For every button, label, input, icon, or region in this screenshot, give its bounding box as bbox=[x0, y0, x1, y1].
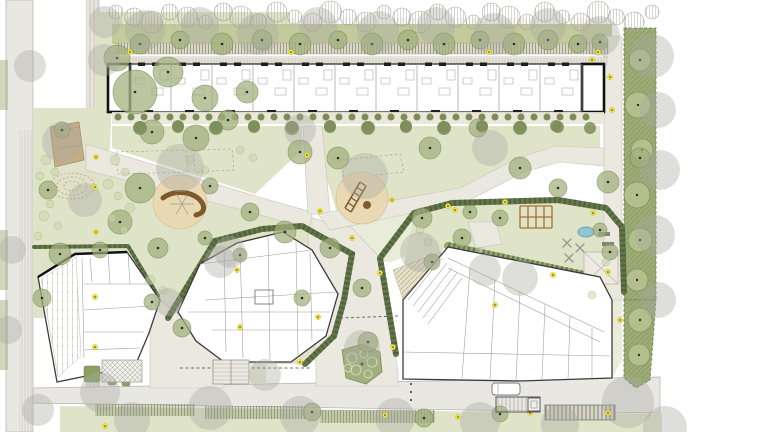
terrace-hedge-bush bbox=[245, 114, 252, 121]
existing-tree-canopy bbox=[357, 11, 399, 53]
terrace-hedge-bush bbox=[141, 114, 148, 121]
window-block bbox=[261, 63, 268, 67]
existing-tree-canopy bbox=[154, 288, 182, 316]
light-fixture-dot bbox=[239, 326, 241, 328]
bollard bbox=[410, 399, 412, 401]
light-fixture-dot bbox=[597, 51, 599, 53]
shrub bbox=[249, 154, 257, 162]
shrub bbox=[120, 226, 128, 234]
tree-trunk bbox=[99, 249, 102, 252]
light-fixture-dot bbox=[95, 156, 97, 158]
tree-trunk bbox=[469, 211, 472, 214]
tree-trunk bbox=[41, 297, 44, 300]
existing-tree-canopy bbox=[125, 10, 165, 50]
tree-trunk bbox=[209, 185, 212, 188]
tree-trunk bbox=[329, 247, 332, 250]
strip-tree-trunk bbox=[636, 279, 638, 281]
existing-tree-canopy bbox=[417, 7, 455, 45]
light-fixture-dot bbox=[619, 319, 621, 321]
shrub bbox=[125, 203, 135, 213]
tree-trunk bbox=[299, 151, 302, 154]
tree-trunk bbox=[151, 301, 154, 304]
window-block bbox=[439, 63, 446, 67]
street-tree bbox=[624, 12, 644, 32]
shrub bbox=[602, 258, 610, 266]
tree-trunk bbox=[284, 231, 287, 234]
tree-trunk bbox=[157, 247, 160, 250]
strip-tree-trunk bbox=[637, 104, 639, 106]
light-fixture-dot bbox=[607, 271, 609, 273]
tree-trunk bbox=[609, 251, 612, 254]
tree-trunk bbox=[639, 157, 642, 160]
existing-tree-canopy bbox=[156, 144, 204, 192]
tree-trunk bbox=[301, 297, 304, 300]
light-fixture-dot bbox=[592, 212, 594, 214]
terrace-hedge-bush bbox=[336, 114, 343, 121]
existing-tree-canopy bbox=[472, 130, 508, 166]
tree-trunk bbox=[577, 43, 580, 46]
terrace-tree bbox=[248, 120, 260, 132]
bollard bbox=[410, 391, 412, 393]
window-block bbox=[316, 63, 323, 67]
existing-tree-canopy bbox=[181, 7, 219, 45]
light-fixture-dot bbox=[454, 209, 456, 211]
tree-trunk bbox=[421, 217, 424, 220]
shrub bbox=[145, 275, 155, 285]
terrace-hedge-bush bbox=[206, 114, 213, 121]
tree-trunk bbox=[337, 39, 340, 42]
street-tree bbox=[340, 9, 356, 25]
existing-tree-canopy bbox=[342, 153, 388, 199]
light-fixture-dot bbox=[94, 296, 96, 298]
light-fixture-dot bbox=[494, 304, 496, 306]
light-fixture-dot bbox=[384, 414, 386, 416]
terrace-hedge-bush bbox=[583, 114, 590, 121]
light-fixture-dot bbox=[94, 346, 96, 348]
tree-trunk bbox=[361, 287, 364, 290]
tree-trunk bbox=[599, 229, 602, 232]
window-block bbox=[384, 63, 391, 67]
shrub bbox=[46, 200, 54, 208]
window-block bbox=[425, 63, 432, 67]
shrub bbox=[588, 291, 596, 299]
window-block bbox=[480, 63, 487, 67]
terrace-hedge-bush bbox=[427, 114, 434, 121]
bollard bbox=[410, 383, 412, 385]
terrace-hedge-bush bbox=[258, 114, 265, 121]
street-tree bbox=[645, 5, 659, 19]
tree-trunk bbox=[221, 43, 224, 46]
shrub bbox=[236, 146, 244, 154]
terrace-hedge-bush bbox=[128, 114, 135, 121]
light-fixture-dot bbox=[391, 199, 393, 201]
window-block bbox=[343, 63, 350, 67]
existing-tree-canopy bbox=[299, 7, 337, 45]
terrace-hedge-bush bbox=[154, 114, 161, 121]
terrace-hedge-bush bbox=[180, 114, 187, 121]
shrub bbox=[36, 172, 44, 180]
terrace-hedge-bush bbox=[440, 114, 447, 121]
site-plan-drawing bbox=[0, 0, 768, 432]
light-fixture-dot bbox=[447, 205, 449, 207]
existing-tree-canopy bbox=[469, 254, 501, 286]
play-element bbox=[363, 201, 371, 209]
tree-trunk bbox=[119, 221, 122, 224]
tree-trunk bbox=[423, 417, 426, 420]
shrub bbox=[39, 211, 49, 221]
edge-green-sliver bbox=[0, 60, 8, 110]
terrace-hedge-bush bbox=[505, 114, 512, 121]
terrace-hedge-bush bbox=[167, 114, 174, 121]
window-block bbox=[507, 63, 514, 67]
terrace-hedge-bush bbox=[557, 114, 564, 121]
terrace-hedge-bush bbox=[518, 114, 525, 121]
terrace-tree bbox=[550, 120, 562, 132]
light-fixture-dot bbox=[94, 186, 96, 188]
existing-tree-canopy bbox=[530, 8, 566, 44]
existing-tree-canopy bbox=[42, 122, 82, 162]
light-fixture-dot bbox=[319, 210, 321, 212]
light-fixture-dot bbox=[379, 272, 381, 274]
tree-trunk bbox=[181, 327, 184, 330]
existing-tree-canopy bbox=[89, 6, 121, 38]
window-block bbox=[234, 63, 241, 67]
tree-trunk bbox=[204, 237, 207, 240]
terrace-hedge-bush bbox=[323, 114, 330, 121]
strip-tree-trunk bbox=[639, 319, 641, 321]
tree-trunk bbox=[47, 189, 50, 192]
terrace-hedge-bush bbox=[453, 114, 460, 121]
light-fixture-dot bbox=[306, 154, 308, 156]
water-play-pool bbox=[578, 227, 594, 237]
tree-trunk bbox=[151, 131, 154, 134]
light-fixture-dot bbox=[504, 201, 506, 203]
street-tree bbox=[162, 4, 178, 20]
terrace-hedge-bush bbox=[115, 114, 122, 121]
shrub bbox=[114, 192, 122, 200]
light-fixture-dot bbox=[236, 269, 238, 271]
tree-trunk bbox=[299, 43, 302, 46]
terrace-hedge-bush bbox=[193, 114, 200, 121]
window-block bbox=[521, 63, 528, 67]
tree-trunk bbox=[167, 71, 170, 74]
existing-tree-canopy bbox=[640, 282, 676, 318]
terrace-tree bbox=[133, 121, 147, 135]
terrace-hedge-bush bbox=[349, 114, 356, 121]
window-block bbox=[302, 63, 309, 67]
tree-trunk bbox=[499, 217, 502, 220]
light-fixture-dot bbox=[290, 51, 292, 53]
light-fixture-dot bbox=[351, 237, 353, 239]
light-fixture-dot bbox=[457, 416, 459, 418]
existing-tree-canopy bbox=[14, 50, 46, 82]
terrace-hedge-bush bbox=[544, 114, 551, 121]
tree-trunk bbox=[134, 91, 137, 94]
terrace-tree bbox=[476, 120, 488, 132]
terrace-hedge-bush bbox=[531, 114, 538, 121]
existing-tree-canopy bbox=[473, 13, 515, 55]
car bbox=[492, 383, 520, 395]
strip-tree-trunk bbox=[636, 194, 638, 196]
shrub bbox=[51, 168, 59, 176]
existing-tree-canopy bbox=[204, 246, 236, 278]
existing-tree-canopy bbox=[400, 232, 440, 272]
tree-trunk bbox=[249, 211, 252, 214]
existing-tree-canopy bbox=[344, 330, 380, 366]
light-fixture-dot bbox=[609, 76, 611, 78]
light-fixture-dot bbox=[129, 51, 131, 53]
tree-trunk bbox=[461, 237, 464, 240]
truck-cab bbox=[528, 398, 540, 411]
shrub bbox=[121, 168, 129, 176]
existing-tree-canopy bbox=[80, 372, 120, 412]
existing-tree-canopy bbox=[249, 359, 281, 391]
shrub bbox=[110, 155, 120, 165]
light-fixture-dot bbox=[317, 316, 319, 318]
existing-tree-canopy bbox=[502, 260, 538, 296]
tree-trunk bbox=[195, 137, 198, 140]
terrace-tree bbox=[172, 120, 184, 132]
window-block bbox=[138, 63, 145, 67]
window-block bbox=[193, 63, 200, 67]
tree-trunk bbox=[179, 39, 182, 42]
terrace-hedge-bush bbox=[271, 114, 278, 121]
light-fixture-dot bbox=[611, 109, 613, 111]
terrace-tree bbox=[437, 121, 451, 135]
existing-tree-canopy bbox=[188, 386, 232, 430]
shrub bbox=[103, 179, 113, 189]
terrace-hedge-bush bbox=[375, 114, 382, 121]
terrace-tree bbox=[209, 121, 223, 135]
shrub bbox=[34, 232, 42, 240]
existing-tree-canopy bbox=[640, 92, 676, 128]
tree-trunk bbox=[407, 39, 410, 42]
terrace-hedge-bush bbox=[570, 114, 577, 121]
window-block bbox=[562, 63, 569, 67]
existing-tree-canopy bbox=[237, 13, 279, 55]
light-fixture-dot bbox=[95, 231, 97, 233]
existing-tree-canopy bbox=[284, 114, 316, 146]
light-fixture-dot bbox=[392, 346, 394, 348]
tree-trunk bbox=[519, 167, 522, 170]
existing-tree-canopy bbox=[640, 150, 680, 190]
light-fixture-dot bbox=[591, 59, 593, 61]
tree-trunk bbox=[557, 187, 560, 190]
window-block bbox=[275, 63, 282, 67]
window-block bbox=[548, 63, 555, 67]
window-block bbox=[398, 63, 405, 67]
terrace-tree bbox=[324, 120, 336, 132]
terrace-tree bbox=[400, 120, 412, 132]
tree-trunk bbox=[513, 43, 516, 46]
light-fixture-dot bbox=[607, 412, 609, 414]
terrace-tree bbox=[584, 122, 596, 134]
window-block bbox=[357, 63, 364, 67]
existing-tree-canopy bbox=[635, 215, 675, 255]
terrace-tree bbox=[513, 121, 527, 135]
tree-trunk bbox=[607, 181, 610, 184]
existing-tree-canopy bbox=[88, 44, 120, 76]
terrace-hedge-bush bbox=[492, 114, 499, 121]
tree-trunk bbox=[246, 91, 249, 94]
tree-trunk bbox=[139, 187, 142, 190]
tree-trunk bbox=[227, 119, 230, 122]
terrace-hedge-bush bbox=[414, 114, 421, 121]
terrace-hedge-bush bbox=[466, 114, 473, 121]
existing-tree-canopy bbox=[22, 394, 54, 426]
light-fixture-dot bbox=[488, 51, 490, 53]
shrub bbox=[477, 247, 483, 253]
block-end-unit bbox=[582, 64, 604, 112]
window-block bbox=[466, 63, 473, 67]
tree-trunk bbox=[337, 157, 340, 160]
terrace-hedge-bush bbox=[401, 114, 408, 121]
existing-tree-canopy bbox=[630, 34, 674, 78]
terrace-tree bbox=[361, 121, 375, 135]
site-plan-canvas bbox=[0, 0, 768, 432]
tree-trunk bbox=[499, 413, 502, 416]
window-block bbox=[220, 63, 227, 67]
tree-trunk bbox=[204, 97, 207, 100]
terrace-hedge-bush bbox=[362, 114, 369, 121]
tree-trunk bbox=[429, 147, 432, 150]
strip-tree-trunk bbox=[638, 354, 640, 356]
light-fixture-dot bbox=[552, 274, 554, 276]
light-fixture-dot bbox=[104, 425, 106, 427]
shrub bbox=[54, 222, 62, 230]
west-road-hatch bbox=[19, 130, 32, 432]
tree-trunk bbox=[59, 253, 62, 256]
terrace-hedge-bush bbox=[388, 114, 395, 121]
light-fixture-dot bbox=[299, 361, 301, 363]
shrub bbox=[108, 214, 116, 222]
